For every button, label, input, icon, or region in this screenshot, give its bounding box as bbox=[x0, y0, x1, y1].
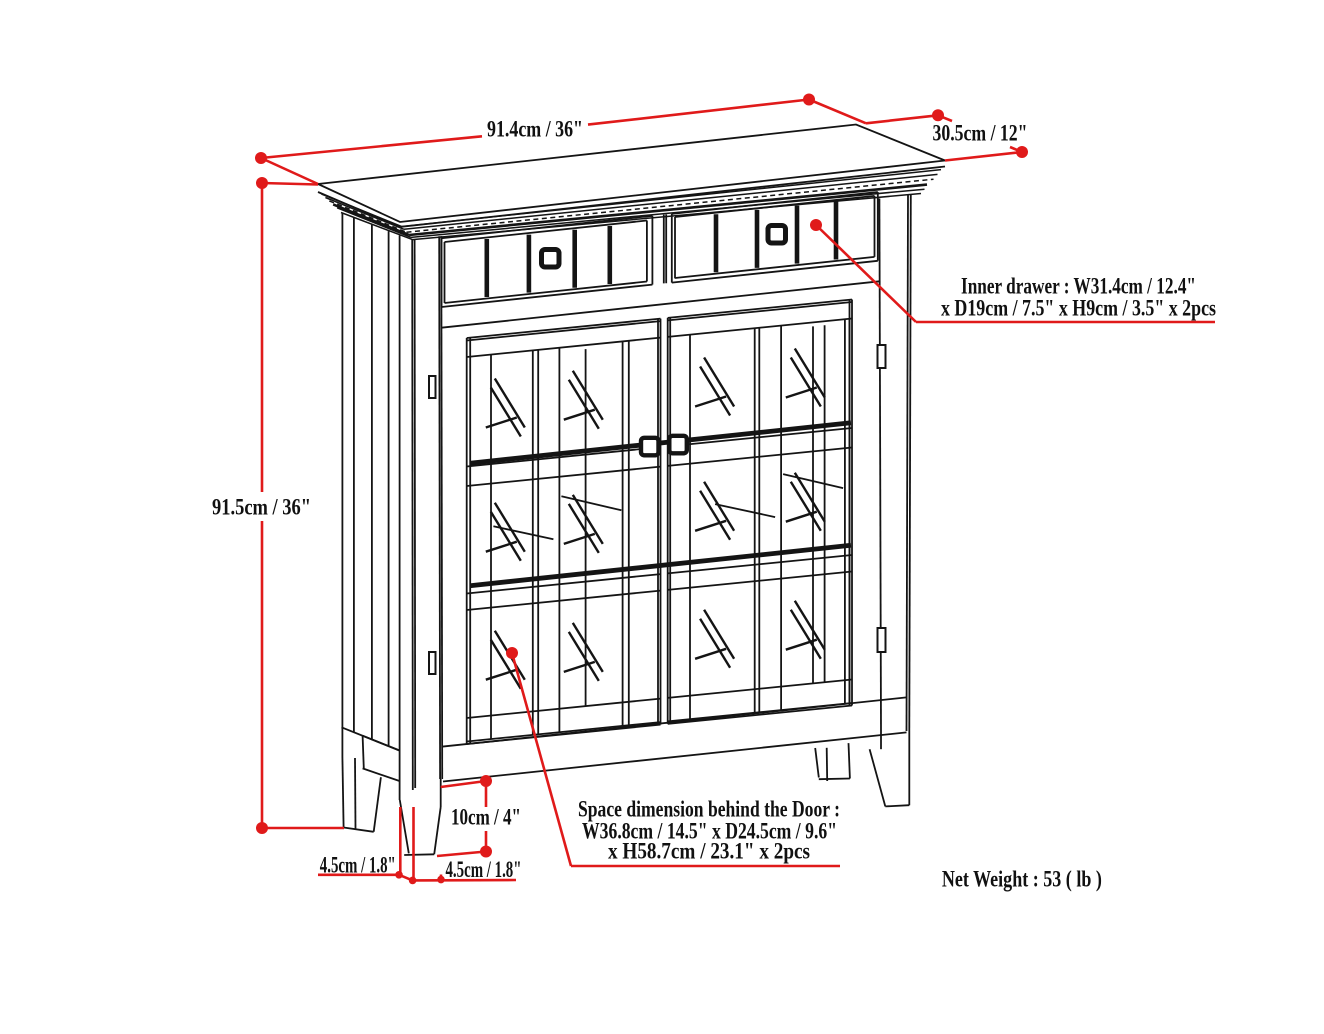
svg-text:x H58.7cm / 23.1" x 2pcs: x H58.7cm / 23.1" x 2pcs bbox=[608, 839, 810, 864]
svg-text:Net Weight : 53 ( lb ): Net Weight : 53 ( lb ) bbox=[942, 867, 1102, 892]
svg-text:91.4cm / 36": 91.4cm / 36" bbox=[487, 117, 583, 142]
svg-text:10cm / 4": 10cm / 4" bbox=[451, 805, 521, 830]
svg-text:91.5cm / 36": 91.5cm / 36" bbox=[212, 495, 311, 520]
svg-text:4.5cm / 1.8": 4.5cm / 1.8" bbox=[446, 857, 522, 882]
svg-text:4.5cm / 1.8": 4.5cm / 1.8" bbox=[320, 853, 396, 878]
svg-text:30.5cm / 12": 30.5cm / 12" bbox=[933, 121, 1028, 146]
svg-text:x D19cm / 7.5" x H9cm / 3.5" x: x D19cm / 7.5" x H9cm / 3.5" x 2pcs bbox=[941, 296, 1216, 321]
